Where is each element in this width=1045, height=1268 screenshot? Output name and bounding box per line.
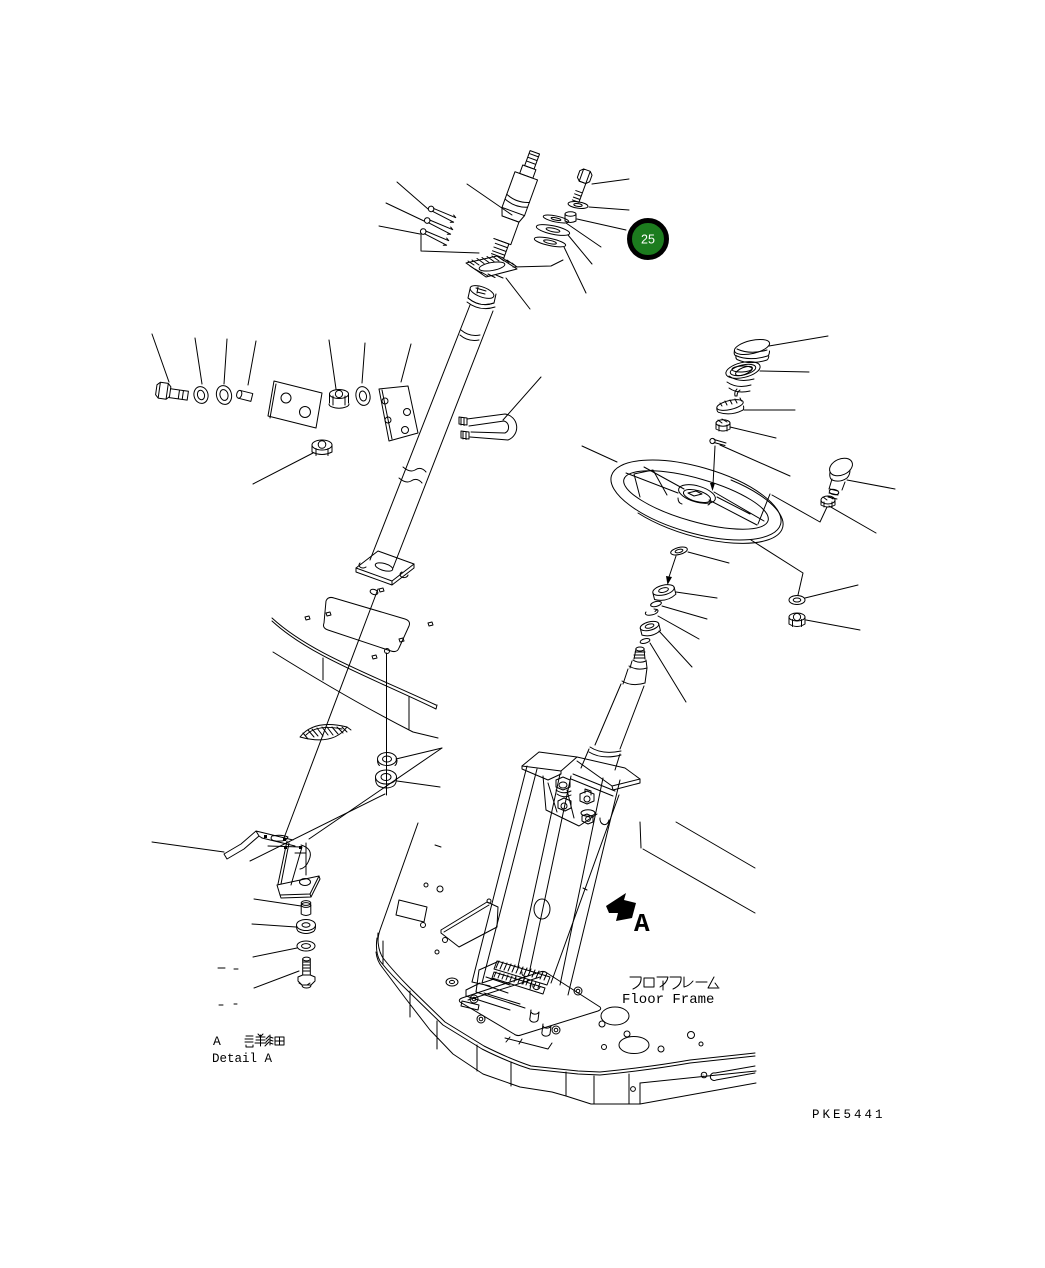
svg-text:A: A (634, 909, 650, 939)
svg-text:25: 25 (641, 233, 655, 247)
svg-text:PKE5441: PKE5441 (812, 1108, 886, 1122)
svg-text:A: A (213, 1034, 221, 1049)
svg-text:Detail A: Detail A (212, 1052, 273, 1066)
svg-text:Floor Frame: Floor Frame (622, 992, 714, 1008)
